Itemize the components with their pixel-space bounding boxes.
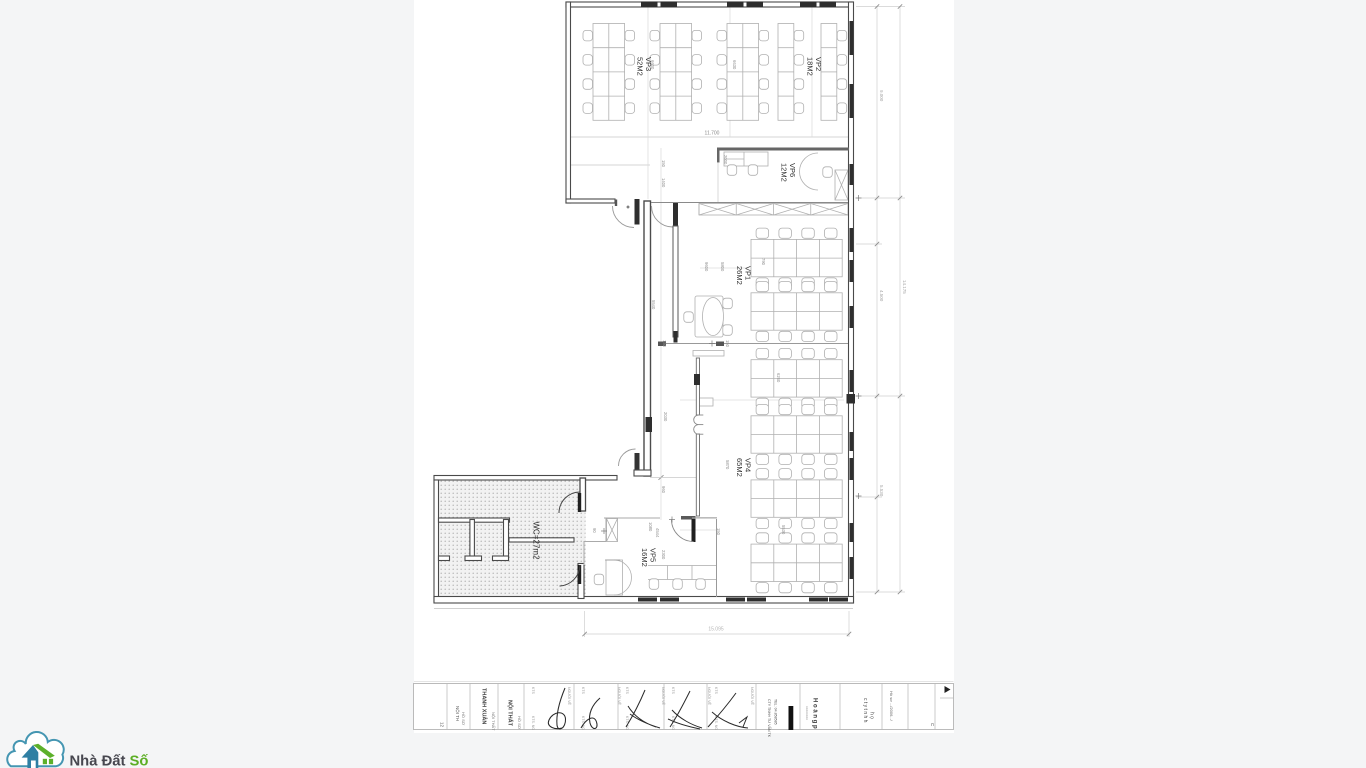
svg-text:TEL: 04.858585: TEL: 04.858585 xyxy=(774,699,778,725)
svg-text:52M2: 52M2 xyxy=(636,57,645,76)
svg-text:h ọ: h ọ xyxy=(869,712,875,719)
svg-text:65M2: 65M2 xyxy=(735,458,744,477)
svg-text:KTS: KTS xyxy=(531,687,535,694)
svg-text:WC=27m2: WC=27m2 xyxy=(532,522,541,561)
svg-text:NGƯỜI VẼ: NGƯỜI VẼ xyxy=(661,687,666,706)
svg-text:14.175: 14.175 xyxy=(902,280,907,294)
svg-text:NỘI TH: NỘI TH xyxy=(455,706,461,721)
svg-text:4.500: 4.500 xyxy=(879,290,884,302)
svg-text:16M2: 16M2 xyxy=(640,548,649,567)
svg-text:KTS: KTS xyxy=(714,687,718,694)
svg-text:4544: 4544 xyxy=(655,528,660,538)
svg-text:9600: 9600 xyxy=(704,262,709,272)
svg-text:H o à n g p: H o à n g p xyxy=(812,698,818,729)
svg-text:790: 790 xyxy=(761,258,766,266)
svg-text:5870: 5870 xyxy=(725,460,730,470)
svg-text:90: 90 xyxy=(592,528,597,533)
svg-text:11.700: 11.700 xyxy=(705,131,720,137)
svg-text:NGƯỜI VẼ: NGƯỜI VẼ xyxy=(567,687,572,706)
svg-text:960: 960 xyxy=(661,486,666,494)
svg-text:6260: 6260 xyxy=(776,373,781,383)
svg-text:18M2: 18M2 xyxy=(806,57,815,76)
svg-text:150: 150 xyxy=(725,340,730,348)
svg-text:Hồ sơ .../2006.../: Hồ sơ .../2006.../ xyxy=(889,691,894,722)
svg-text:NỘI THẤT: NỘI THẤT xyxy=(507,700,515,727)
svg-text:KTS. NG: KTS. NG xyxy=(531,716,535,730)
svg-text:5800: 5800 xyxy=(720,262,725,272)
svg-text:150: 150 xyxy=(662,340,667,348)
svg-text:150: 150 xyxy=(716,528,721,536)
svg-text:HỒ SƠ: HỒ SƠ xyxy=(517,716,522,730)
svg-text:6600: 6600 xyxy=(650,60,655,70)
svg-text:12: 12 xyxy=(440,722,445,728)
svg-text:c t y t n h h: c t y t n h h xyxy=(862,698,868,723)
svg-text:15.095: 15.095 xyxy=(708,627,724,633)
svg-text:NGƯỜI VẼ: NGƯỜI VẼ xyxy=(617,687,622,706)
svg-text:Nhà Đất Số: Nhà Đất Số xyxy=(70,754,149,768)
svg-text:26M2: 26M2 xyxy=(735,266,744,285)
svg-text:6630: 6630 xyxy=(732,60,737,70)
svg-text:2300: 2300 xyxy=(661,550,666,560)
svg-text:KTS: KTS xyxy=(581,687,585,694)
svg-text:HỒ SƠ: HỒ SƠ xyxy=(461,712,466,726)
svg-text:1080: 1080 xyxy=(648,522,653,532)
svg-text:KTS: KTS xyxy=(671,687,675,694)
svg-text:THANH XUÂN: THANH XUÂN xyxy=(481,688,488,724)
svg-text:5530: 5530 xyxy=(781,525,786,535)
svg-text:12M2: 12M2 xyxy=(780,163,789,182)
svg-text:2030: 2030 xyxy=(663,412,668,422)
svg-text:150: 150 xyxy=(661,160,666,168)
svg-text:9.000: 9.000 xyxy=(879,90,884,102)
svg-text:xxxxxxxx: xxxxxxxx xyxy=(805,706,809,720)
svg-text:CTY TNHH TƯ VẤN TK: CTY TNHH TƯ VẤN TK xyxy=(767,699,771,738)
svg-text:KTS: KTS xyxy=(625,687,629,694)
svg-text:2000: 2000 xyxy=(723,155,728,165)
svg-text:NỘI THẤT: NỘI THẤT xyxy=(491,712,496,731)
svg-text:5540: 5540 xyxy=(651,300,656,310)
svg-text:5.530: 5.530 xyxy=(879,485,884,497)
svg-text:NGƯỜI VẼ: NGƯỜI VẼ xyxy=(750,687,755,706)
svg-text:NGƯỜI VẼ: NGƯỜI VẼ xyxy=(707,687,712,706)
svg-text:1400: 1400 xyxy=(661,178,666,188)
